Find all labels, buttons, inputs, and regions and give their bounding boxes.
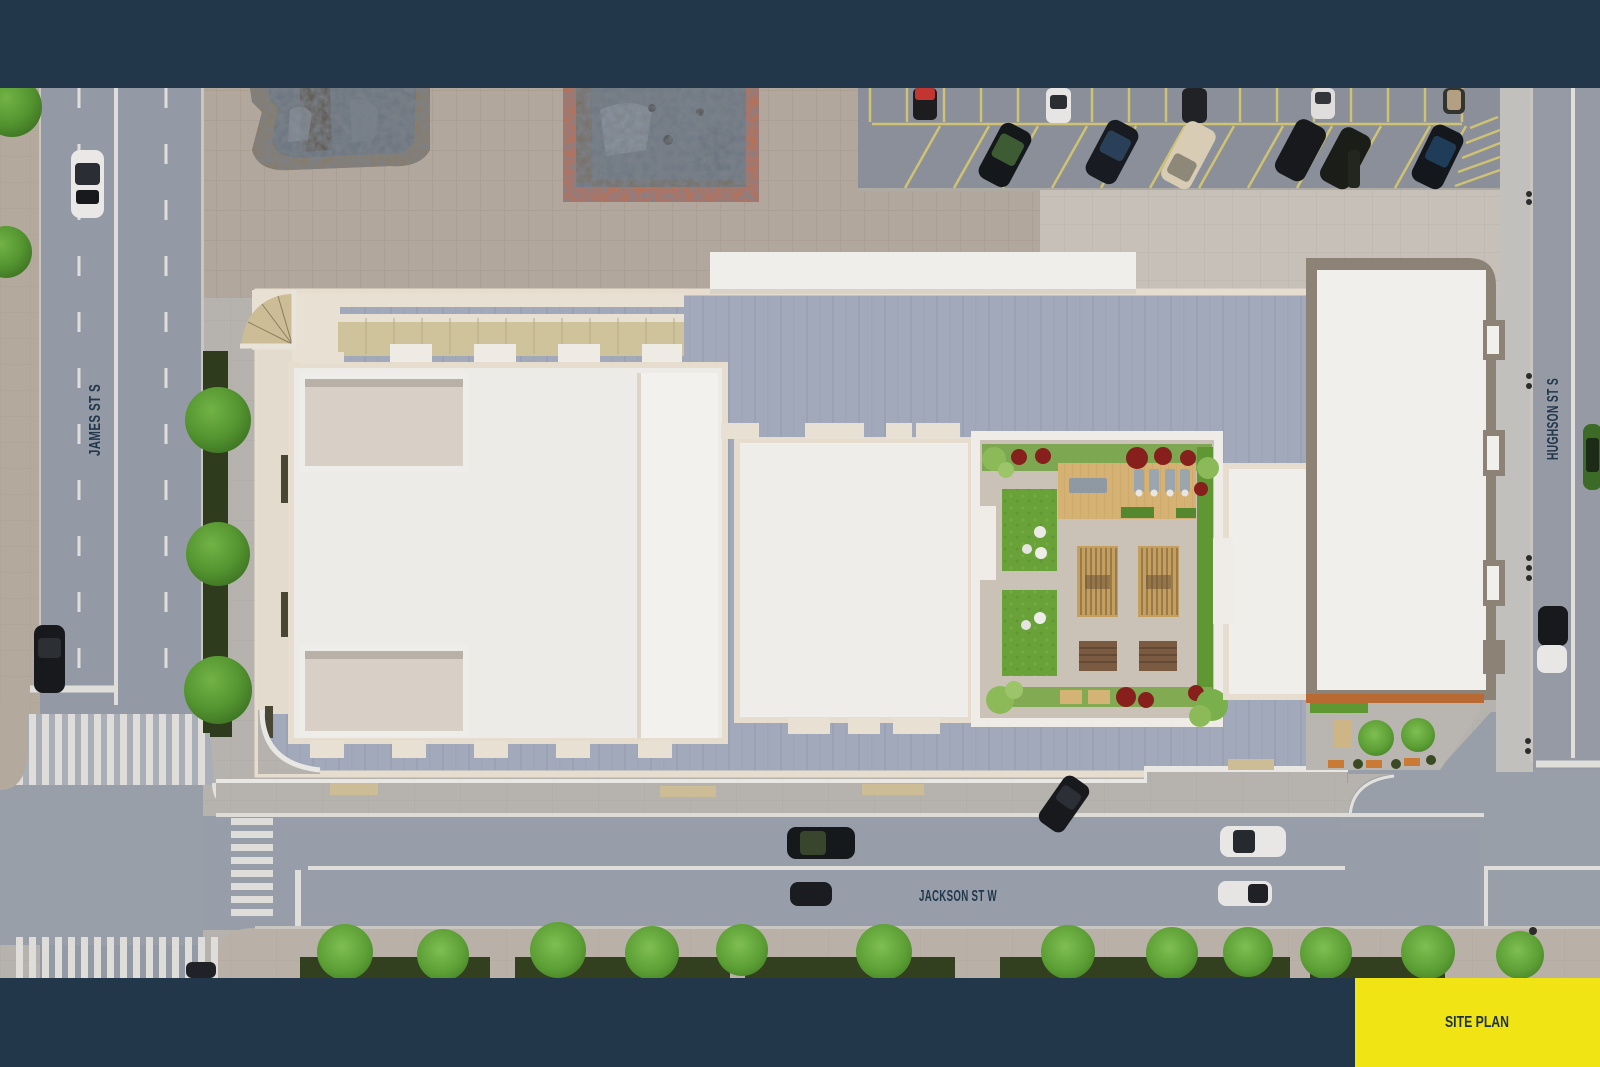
svg-text:SITE PLAN: SITE PLAN — [1445, 1014, 1509, 1031]
svg-text:JACKSON ST W: JACKSON ST W — [919, 888, 997, 905]
svg-text:JAMES ST S: JAMES ST S — [87, 384, 104, 456]
svg-text:HUGHSON ST S: HUGHSON ST S — [1545, 378, 1562, 460]
